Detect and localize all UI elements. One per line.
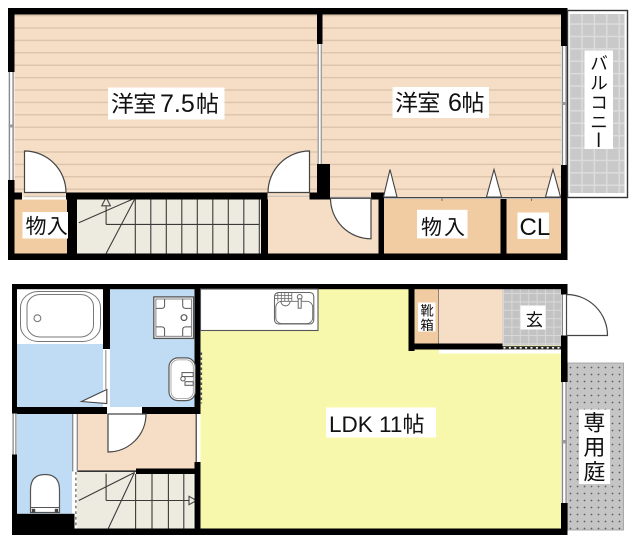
svg-text:CL: CL <box>520 214 551 241</box>
svg-text:6: 6 <box>448 89 462 117</box>
svg-text:7.5: 7.5 <box>160 90 195 118</box>
svg-text:LDK 11: LDK 11 <box>329 412 402 437</box>
